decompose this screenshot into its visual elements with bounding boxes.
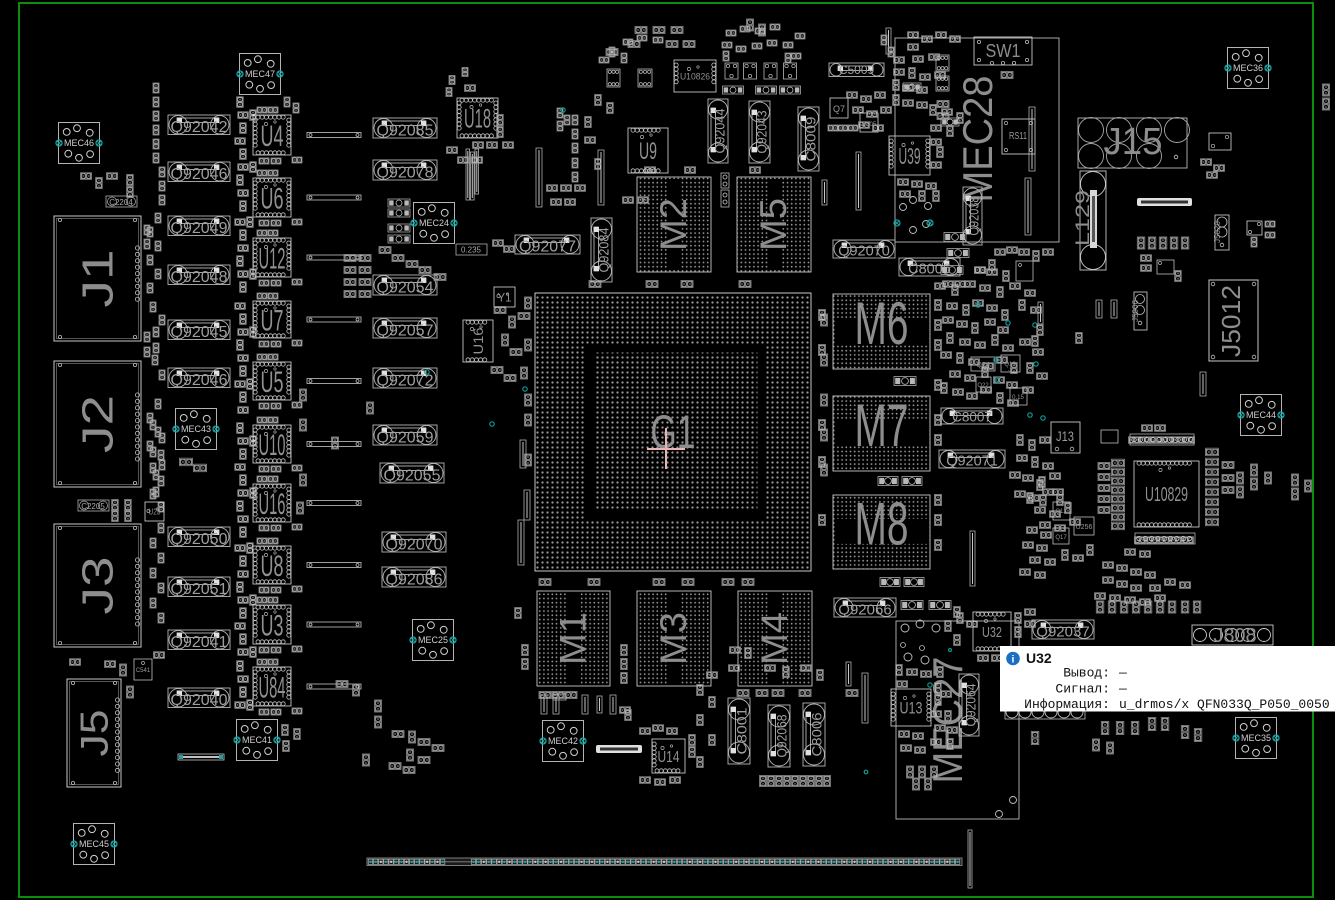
svg-text:MEC24: MEC24 <box>419 218 449 228</box>
svg-text:Q92059: Q92059 <box>377 430 434 447</box>
svg-text:Q92068: Q92068 <box>774 714 790 757</box>
svg-text:Q92049: Q92049 <box>171 220 228 237</box>
svg-text:Q92040: Q92040 <box>171 692 228 709</box>
svg-text:L129: L129 <box>1073 190 1094 246</box>
svg-text:C541: C541 <box>136 668 151 674</box>
svg-text:MEC45: MEC45 <box>79 839 109 849</box>
svg-text:U4: U4 <box>261 120 284 153</box>
svg-text:Вывод:: Вывод: <box>1063 666 1110 681</box>
svg-text:Q92078: Q92078 <box>377 165 434 182</box>
svg-text:Y1: Y1 <box>498 290 512 304</box>
svg-text:Q92048: Q92048 <box>171 269 228 286</box>
svg-text:Q92070: Q92070 <box>838 244 890 260</box>
svg-text:M7: M7 <box>855 392 909 459</box>
svg-text:MEC42: MEC42 <box>548 736 578 746</box>
svg-text:SW1: SW1 <box>986 41 1021 61</box>
svg-text:Сигнал:: Сигнал: <box>1055 682 1110 697</box>
svg-text:RS11: RS11 <box>1009 130 1027 142</box>
svg-text:U12: U12 <box>259 242 286 275</box>
svg-text:Информация:: Информация: <box>1024 697 1110 712</box>
svg-text:C8006: C8006 <box>809 712 825 756</box>
svg-text:Q92045: Q92045 <box>171 324 228 341</box>
svg-text:0.235: 0.235 <box>461 246 482 255</box>
svg-text:Q92055: Q92055 <box>384 468 441 485</box>
svg-text:Q7: Q7 <box>833 104 845 114</box>
svg-text:Q92051: Q92051 <box>171 581 228 598</box>
svg-text:—: — <box>1118 682 1127 697</box>
svg-text:Q92072: Q92072 <box>377 373 434 390</box>
svg-text:C8007: C8007 <box>952 410 992 425</box>
svg-text:J13: J13 <box>1056 428 1074 444</box>
svg-text:U23: U23 <box>149 507 161 516</box>
svg-text:U5: U5 <box>261 366 284 399</box>
svg-text:-2: -2 <box>1008 368 1013 374</box>
svg-text:U13: U13 <box>900 699 923 718</box>
svg-text:U3: U3 <box>261 609 284 642</box>
svg-text:M1: M1 <box>552 612 593 665</box>
svg-text:u_drmos/x QFN033Q_P050_0050: u_drmos/x QFN033Q_P050_0050 <box>1119 697 1330 712</box>
svg-text:MEC47: MEC47 <box>245 69 275 79</box>
svg-text:Q92064: Q92064 <box>963 683 979 726</box>
svg-text:J5012: J5012 <box>1216 285 1246 357</box>
svg-text:0.15: 0.15 <box>1012 395 1024 401</box>
svg-text:Q92043: Q92043 <box>754 110 770 153</box>
svg-text:C2205: C2205 <box>81 502 105 511</box>
svg-text:M2: M2 <box>653 198 694 251</box>
svg-text:Q92057: Q92057 <box>377 323 434 340</box>
svg-text:Q92066: Q92066 <box>838 602 891 619</box>
svg-text:Q92084: Q92084 <box>596 227 612 272</box>
svg-text:U39: U39 <box>899 143 921 169</box>
svg-text:Q92077: Q92077 <box>519 239 576 256</box>
svg-text:C2204: C2204 <box>109 198 133 207</box>
svg-text:Q92044: Q92044 <box>712 108 728 153</box>
svg-text:U7: U7 <box>261 304 284 337</box>
svg-text:M8: M8 <box>855 491 909 558</box>
svg-text:MEC35: MEC35 <box>1241 733 1271 743</box>
svg-text:Q92086: Q92086 <box>386 572 443 589</box>
svg-text:U16: U16 <box>470 327 486 354</box>
svg-text:U32: U32 <box>982 624 1002 641</box>
svg-text:MEC41: MEC41 <box>242 735 272 745</box>
svg-text:Q92037: Q92037 <box>1036 624 1089 641</box>
svg-text:U16: U16 <box>259 488 286 521</box>
svg-text:MEC46: MEC46 <box>64 138 94 148</box>
svg-text:i: i <box>1012 654 1015 666</box>
svg-text:U6: U6 <box>261 182 284 215</box>
svg-text:J1: J1 <box>74 250 123 308</box>
svg-text:Q24: Q24 <box>976 362 989 369</box>
svg-text:J5006: J5006 <box>1131 300 1140 322</box>
svg-text:Q92042: Q92042 <box>171 119 228 136</box>
svg-text:C8001: C8001 <box>734 707 750 754</box>
svg-text:U10829: U10829 <box>1145 484 1188 506</box>
svg-text:MEC25: MEC25 <box>418 635 448 645</box>
svg-text:Q92085: Q92085 <box>377 123 434 140</box>
svg-text:Q12: Q12 <box>1055 509 1067 515</box>
svg-text:U32: U32 <box>1026 650 1052 666</box>
svg-text:Q17: Q17 <box>1055 535 1067 541</box>
svg-text:M3: M3 <box>653 612 694 665</box>
svg-text:MEC28: MEC28 <box>954 76 1001 203</box>
svg-text:U18: U18 <box>464 104 491 134</box>
svg-text:C5009: C5009 <box>839 63 875 77</box>
svg-text:M5: M5 <box>753 198 794 251</box>
svg-text:MEC36: MEC36 <box>1233 63 1263 73</box>
svg-text:Q92054: Q92054 <box>377 280 434 297</box>
svg-text:U8: U8 <box>261 550 284 583</box>
svg-text:—: — <box>1118 666 1127 681</box>
svg-text:Q92046: Q92046 <box>171 372 228 389</box>
svg-text:Q92050: Q92050 <box>171 531 228 548</box>
svg-text:MEC43: MEC43 <box>181 424 211 434</box>
svg-text:M4: M4 <box>754 612 795 665</box>
svg-text:U10826: U10826 <box>680 71 710 82</box>
svg-text:M6: M6 <box>855 290 909 357</box>
svg-text:Q92070: Q92070 <box>386 537 443 554</box>
svg-text:U9: U9 <box>639 138 657 165</box>
svg-text:Q92046: Q92046 <box>171 166 228 183</box>
svg-text:Q92071: Q92071 <box>946 454 998 470</box>
svg-text:Q22: Q22 <box>977 383 989 389</box>
svg-text:J2: J2 <box>74 395 123 453</box>
svg-text:J15: J15 <box>1104 121 1163 163</box>
svg-text:Q92041: Q92041 <box>171 634 228 651</box>
svg-text:C8009: C8009 <box>803 116 819 161</box>
svg-text:J3: J3 <box>74 557 123 615</box>
svg-text:J5: J5 <box>73 710 116 757</box>
svg-text:U84: U84 <box>259 671 286 704</box>
svg-text:MEC44: MEC44 <box>1246 410 1276 420</box>
svg-text:J808: J808 <box>1213 625 1256 647</box>
svg-text:U256: U256 <box>1076 524 1093 531</box>
svg-text:Q92038: Q92038 <box>966 196 982 235</box>
svg-text:G1: G1 <box>651 405 696 458</box>
svg-text:U10: U10 <box>259 429 286 462</box>
svg-text:U14: U14 <box>658 749 680 766</box>
svg-text:J5020: J5020 <box>1213 221 1222 243</box>
